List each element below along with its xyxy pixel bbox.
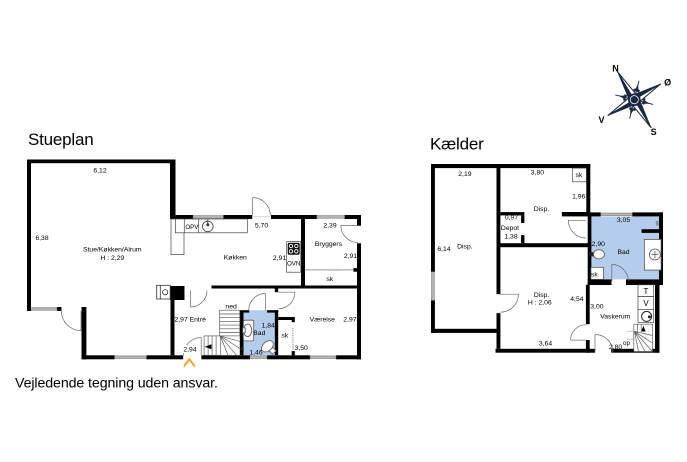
svg-text:Bryggers: Bryggers: [315, 241, 343, 248]
svg-text:H : 2,29: H : 2,29: [100, 255, 124, 262]
svg-text:Værelse: Værelse: [310, 317, 336, 324]
svg-text:2,91: 2,91: [273, 255, 286, 262]
svg-text:Vaskerum: Vaskerum: [600, 313, 630, 320]
svg-text:S: S: [651, 127, 657, 137]
svg-text:Ø: Ø: [664, 78, 671, 88]
svg-text:3,50: 3,50: [295, 345, 308, 352]
svg-text:6,38: 6,38: [35, 235, 48, 242]
svg-text:2,91: 2,91: [344, 253, 357, 260]
svg-text:Stue/Køkken/Alrum: Stue/Køkken/Alrum: [83, 247, 142, 254]
svg-text:Disp.: Disp.: [457, 243, 473, 250]
svg-text:ned: ned: [225, 304, 237, 311]
svg-text:1,38: 1,38: [504, 234, 517, 241]
svg-text:T: T: [644, 287, 649, 296]
svg-text:6,12: 6,12: [93, 168, 106, 175]
svg-text:Køkken: Køkken: [224, 254, 247, 261]
svg-text:3,64: 3,64: [539, 341, 552, 348]
svg-text:3,80: 3,80: [531, 170, 544, 177]
svg-text:2,94: 2,94: [183, 347, 196, 354]
svg-text:op: op: [623, 340, 630, 347]
svg-text:N: N: [612, 64, 619, 74]
svg-text:H : 2,06: H : 2,06: [528, 299, 552, 306]
svg-text:1,96: 1,96: [572, 194, 585, 201]
svg-text:5,70: 5,70: [255, 222, 268, 229]
svg-text:1,46: 1,46: [249, 349, 262, 356]
svg-text:2,97: 2,97: [343, 317, 356, 324]
svg-text:Bad: Bad: [253, 330, 265, 337]
svg-text:4,54: 4,54: [570, 296, 583, 303]
svg-text:2,19: 2,19: [458, 171, 471, 178]
svg-text:Disp.: Disp.: [534, 206, 550, 213]
svg-text:V: V: [598, 115, 604, 125]
svg-text:3,00: 3,00: [590, 304, 603, 311]
svg-text:sk: sk: [326, 276, 333, 283]
svg-text:1,84: 1,84: [262, 323, 275, 330]
svg-text:V: V: [643, 299, 649, 308]
svg-text:Depot: Depot: [501, 225, 519, 232]
svg-text:Vejledende tegning uden ansvar: Vejledende tegning uden ansvar.: [15, 376, 218, 392]
svg-text:2,39: 2,39: [323, 223, 336, 230]
svg-text:sk: sk: [591, 272, 598, 279]
svg-text:Disp.: Disp.: [534, 292, 550, 299]
svg-text:2,80: 2,80: [609, 344, 622, 351]
svg-text:0,97: 0,97: [505, 215, 518, 222]
svg-text:2,97 Entré: 2,97 Entré: [175, 317, 207, 324]
svg-text:2,90: 2,90: [592, 241, 605, 248]
svg-text:Stueplan: Stueplan: [28, 130, 94, 149]
svg-text:sk: sk: [281, 333, 288, 340]
svg-text:Bad: Bad: [617, 249, 629, 256]
svg-text:OVN: OVN: [287, 260, 300, 267]
svg-text:OPV: OPV: [185, 224, 199, 231]
svg-text:6,14: 6,14: [437, 246, 450, 253]
svg-text:3,05: 3,05: [617, 217, 630, 224]
svg-text:Kælder: Kælder: [430, 135, 484, 154]
svg-text:sk: sk: [576, 172, 583, 179]
